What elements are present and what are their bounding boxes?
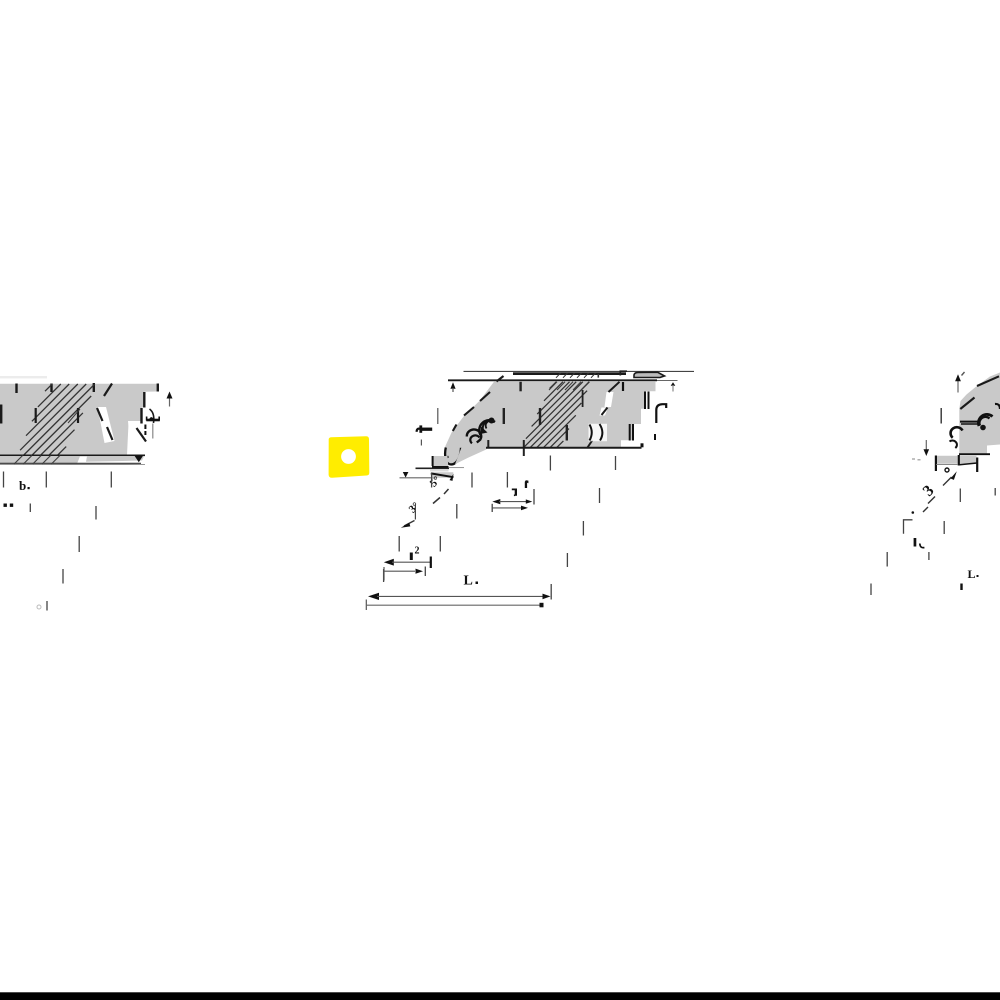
svg-text:2: 2: [415, 546, 420, 557]
svg-text:L: L: [968, 567, 976, 581]
svg-text:3°: 3°: [407, 500, 422, 515]
svg-text:b: b: [19, 478, 26, 493]
svg-text:L: L: [464, 574, 473, 589]
